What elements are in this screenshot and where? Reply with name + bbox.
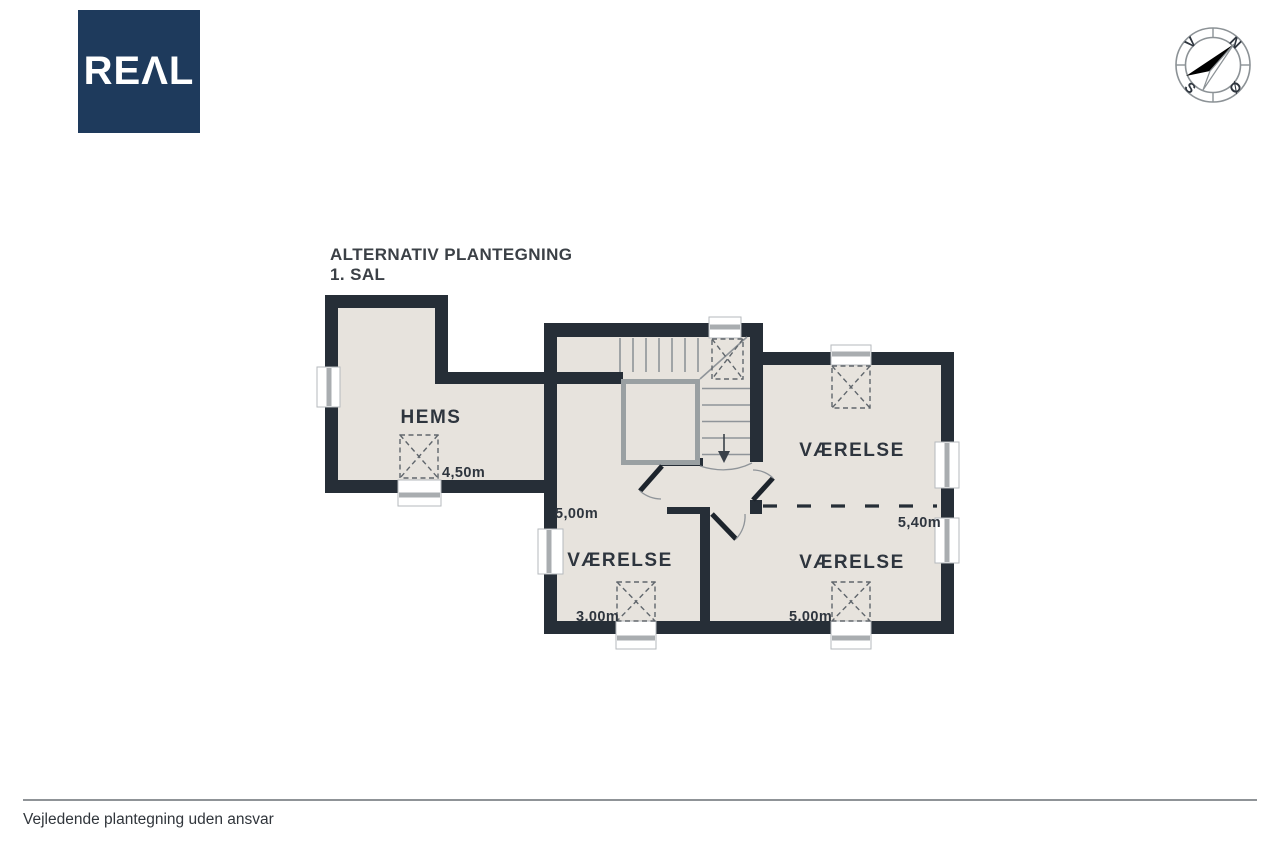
stairwell-void xyxy=(624,382,698,463)
window-left-wall xyxy=(538,529,563,574)
measure-top-right-width: 5,40m xyxy=(898,515,941,531)
window-stair-top xyxy=(709,317,741,338)
room-label-top-right: VÆRELSE xyxy=(799,440,905,461)
floorplan: HEMS 4,50m 5,00m VÆRELSE 3,00m VÆRELSE 5… xyxy=(0,0,1280,853)
footer-divider xyxy=(23,799,1257,801)
window-hems-left xyxy=(317,367,340,407)
window-right-wall-upper xyxy=(935,442,959,488)
measure-bottom-right-width: 5,00m xyxy=(789,609,832,625)
window-bottom-middle xyxy=(616,621,656,649)
window-bottom-right xyxy=(831,621,871,649)
wall-stair-east xyxy=(750,323,763,462)
measure-left-depth: 5,00m xyxy=(555,506,598,522)
footer-disclaimer: Vejledende plantegning uden ansvar xyxy=(23,811,274,829)
wall-room-divider xyxy=(700,507,710,634)
measure-hems: 4,50m xyxy=(442,465,485,481)
room-label-hems: HEMS xyxy=(401,407,462,428)
wall-door-stub-vertical xyxy=(750,500,762,514)
window-hems-bottom xyxy=(398,480,441,506)
wall-hems-step xyxy=(435,372,623,384)
wall-hems-right-upper xyxy=(435,295,448,384)
room-label-bottom-right: VÆRELSE xyxy=(799,552,905,573)
wall-middle-left xyxy=(544,323,557,634)
wall-hems-top xyxy=(325,295,448,308)
measure-left-width: 3,00m xyxy=(576,609,619,625)
room-label-left: VÆRELSE xyxy=(567,550,673,571)
window-right-room-top xyxy=(831,345,871,365)
wall-right xyxy=(941,352,954,634)
